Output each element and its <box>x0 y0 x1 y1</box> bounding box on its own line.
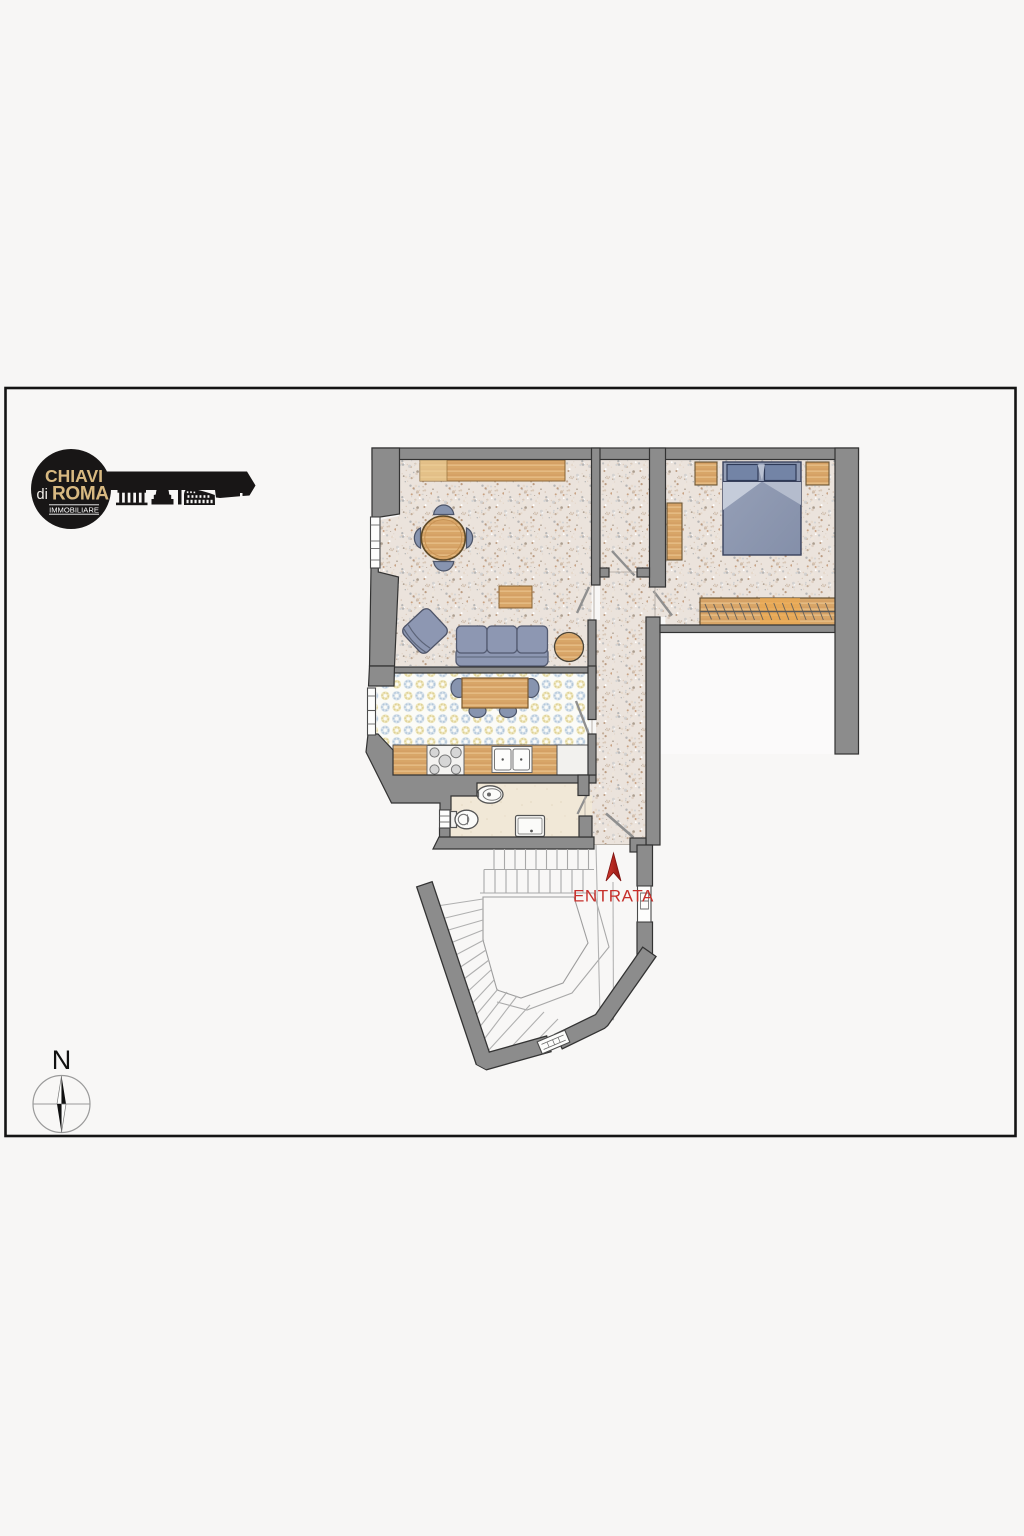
svg-text:N: N <box>52 1045 72 1075</box>
svg-text:ENTRATA: ENTRATA <box>573 887 654 906</box>
svg-text:IMMOBILIARE: IMMOBILIARE <box>49 505 99 514</box>
svg-text:ROMA: ROMA <box>52 483 109 504</box>
svg-text:di: di <box>37 487 48 503</box>
